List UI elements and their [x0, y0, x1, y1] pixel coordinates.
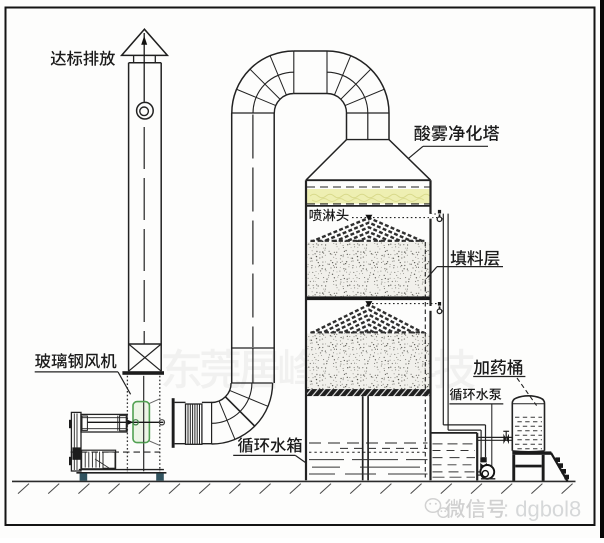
svg-text:: dgbol8: : dgbol8: [503, 496, 581, 521]
